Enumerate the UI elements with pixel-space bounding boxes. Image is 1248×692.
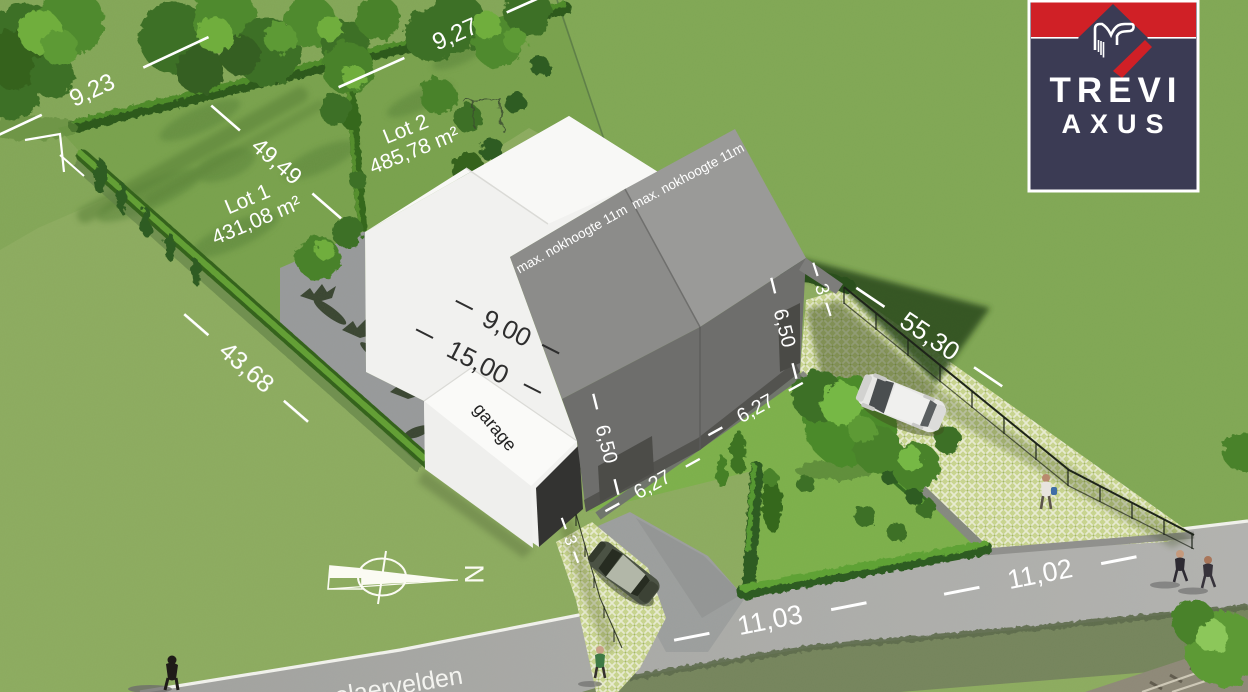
svg-text:N: N	[459, 564, 489, 584]
svg-text:TREVI: TREVI	[1049, 71, 1182, 110]
svg-text:AXUS: AXUS	[1061, 109, 1172, 139]
